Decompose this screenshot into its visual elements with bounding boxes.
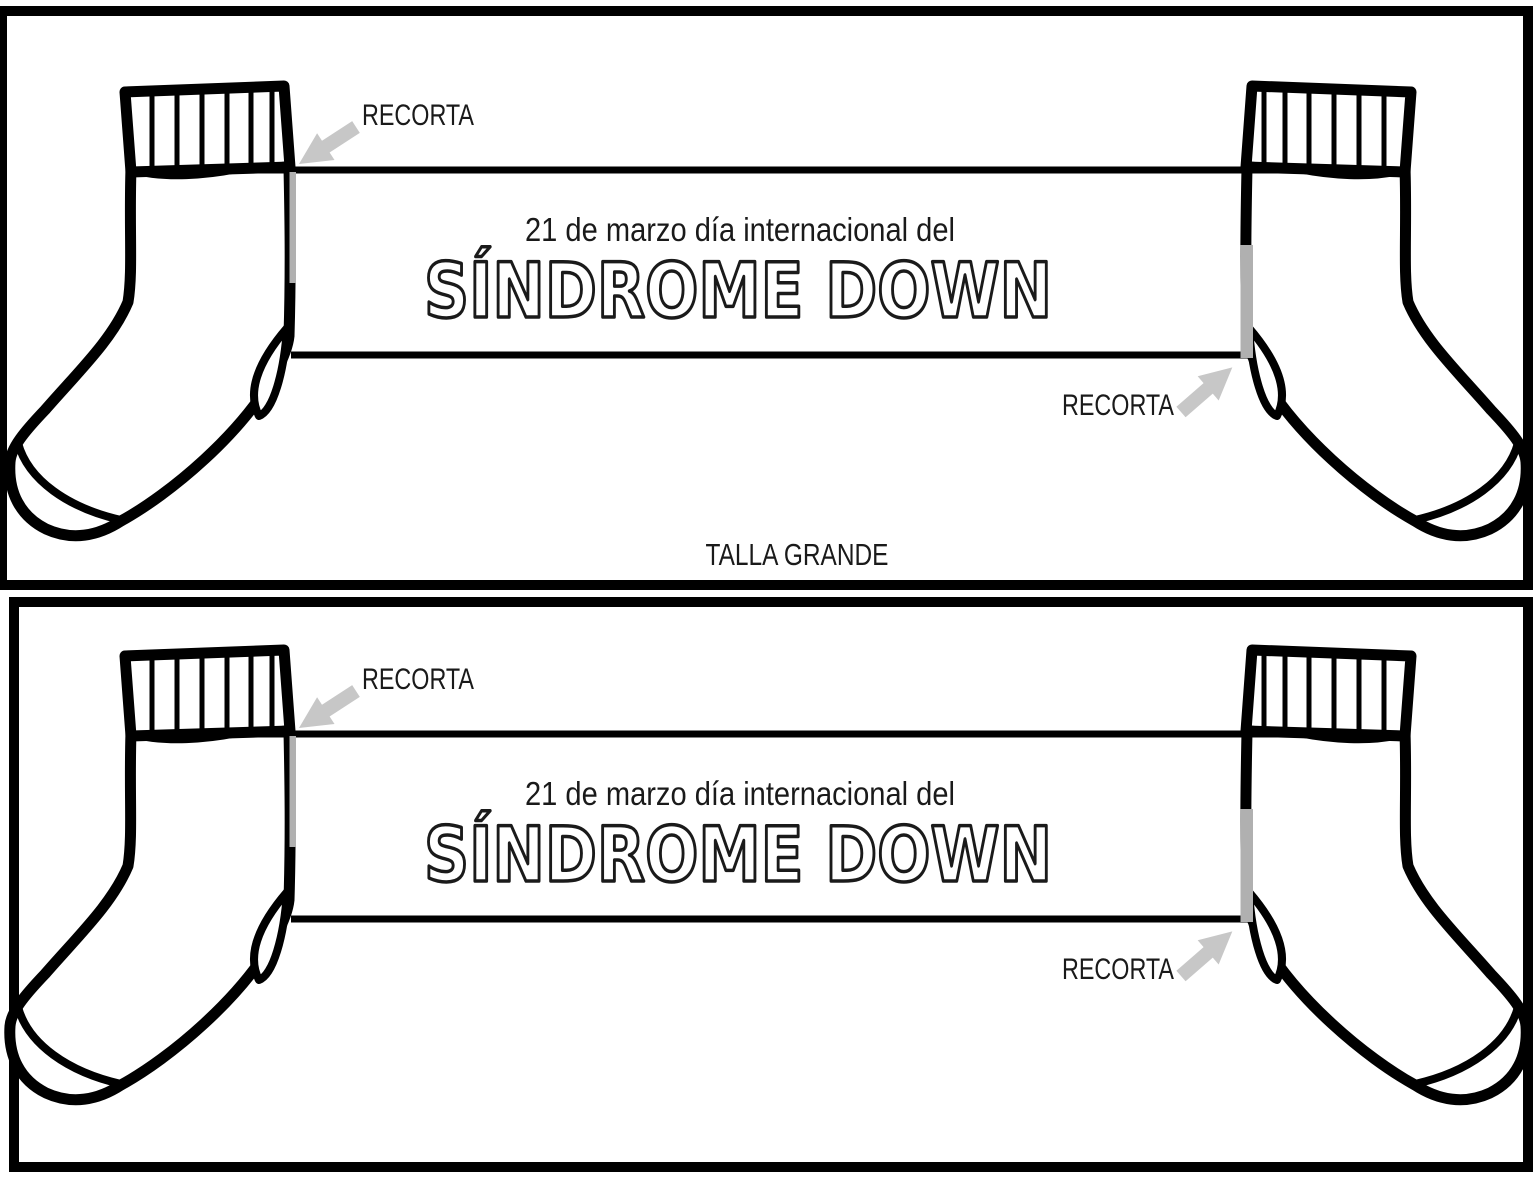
cut-label-bottom-right: RECORTA bbox=[1062, 953, 1174, 986]
sock-left bbox=[10, 650, 290, 1100]
banner-subtitle: 21 de marzo día internacional del bbox=[525, 211, 955, 248]
panel-2-art: RECORTA RECORTA 21 de marzo día internac… bbox=[10, 650, 1526, 1100]
cut-arrow-bottom-right bbox=[1171, 355, 1243, 424]
sock-right bbox=[1246, 650, 1526, 1100]
sock-right bbox=[1246, 86, 1526, 536]
sock-left bbox=[10, 86, 290, 536]
size-label: TALLA GRANDE bbox=[706, 537, 889, 572]
cut-label-bottom-right: RECORTA bbox=[1062, 389, 1174, 422]
cut-mark-left bbox=[290, 172, 297, 283]
cut-arrow-bottom-right bbox=[1171, 919, 1243, 988]
cut-mark-right bbox=[1241, 809, 1254, 922]
banner-title: SÍNDROME DOWN bbox=[424, 246, 1052, 335]
cut-mark-left bbox=[290, 736, 297, 847]
worksheet-art: RECORTA RECORTA 21 de marzo día internac… bbox=[0, 0, 1536, 1188]
banner-subtitle: 21 de marzo día internacional del bbox=[525, 775, 955, 812]
cut-label-top-left: RECORTA bbox=[362, 99, 474, 132]
panel-1-art: RECORTA RECORTA 21 de marzo día internac… bbox=[10, 86, 1526, 572]
banner-title: SÍNDROME DOWN bbox=[424, 810, 1052, 899]
cut-label-top-left: RECORTA bbox=[362, 663, 474, 696]
cut-mark-right bbox=[1241, 245, 1254, 358]
worksheet: RECORTA RECORTA 21 de marzo día internac… bbox=[0, 0, 1536, 1188]
